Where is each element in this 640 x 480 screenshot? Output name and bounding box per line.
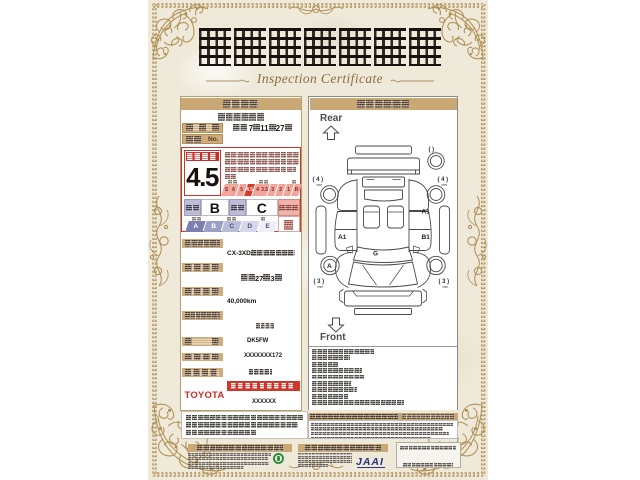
svg-text:( ): ( ) bbox=[428, 147, 434, 153]
svg-text:G: G bbox=[373, 251, 378, 258]
svg-text:mm: mm bbox=[316, 183, 322, 187]
svg-text:B1: B1 bbox=[421, 234, 430, 241]
svg-text:A: A bbox=[327, 263, 332, 270]
svg-text:mm: mm bbox=[317, 285, 323, 289]
svg-text:mm: mm bbox=[442, 285, 448, 289]
svg-text:A1: A1 bbox=[338, 234, 347, 241]
svg-text:mm: mm bbox=[441, 183, 447, 187]
svg-text:A1: A1 bbox=[421, 209, 430, 216]
